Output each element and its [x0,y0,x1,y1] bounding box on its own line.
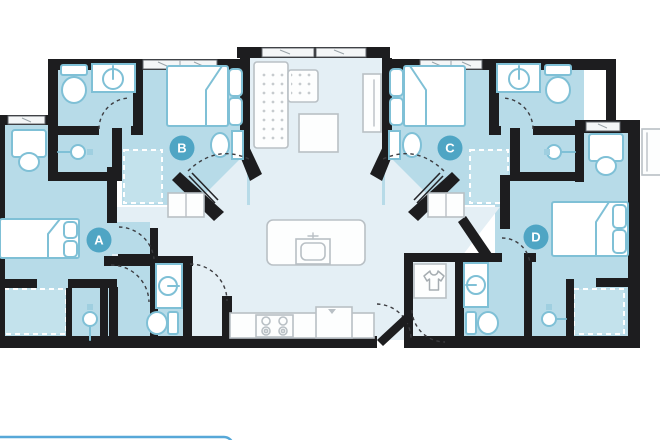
floorplan-svg: A B C D [0,0,660,440]
svg-text:D: D [531,230,540,245]
svg-text:B: B [177,141,186,156]
sink-vanity-c [497,64,540,92]
sink-vanity-b [92,64,135,92]
foyer-cabinet-right [428,193,464,217]
sink-vanity-d [464,263,488,307]
svg-text:C: C [445,141,455,156]
window [262,48,314,57]
toilet-a [147,312,178,334]
room-label-c: C [438,136,463,161]
window [8,116,45,124]
carpet-a [4,289,66,334]
toilet-b [61,65,87,103]
sink-vanity-a [156,264,182,308]
room-label-b: B [170,136,195,161]
tv-console [363,74,381,132]
neighbor-unit-stub [642,129,660,175]
svg-text:A: A [94,233,104,248]
toilet-c [545,65,571,103]
carpet-d [574,289,624,334]
bed-d [552,202,628,256]
foyer-cabinet-left [168,193,204,217]
bed-a [0,219,79,258]
toilet-d [466,312,498,334]
refrigerator [316,307,352,338]
room-label-a: A [87,228,112,253]
window [586,122,620,131]
bed-c [390,66,465,126]
bed-b [167,66,242,126]
carpet-b-nook [124,150,162,203]
kitchen-island [267,220,365,265]
coffee-table [299,114,338,152]
room-label-d: D [524,225,549,250]
floorplan-canvas: A B C D [0,0,660,440]
window [316,48,366,57]
washer-dryer-icon [414,264,446,298]
stove [256,315,293,337]
